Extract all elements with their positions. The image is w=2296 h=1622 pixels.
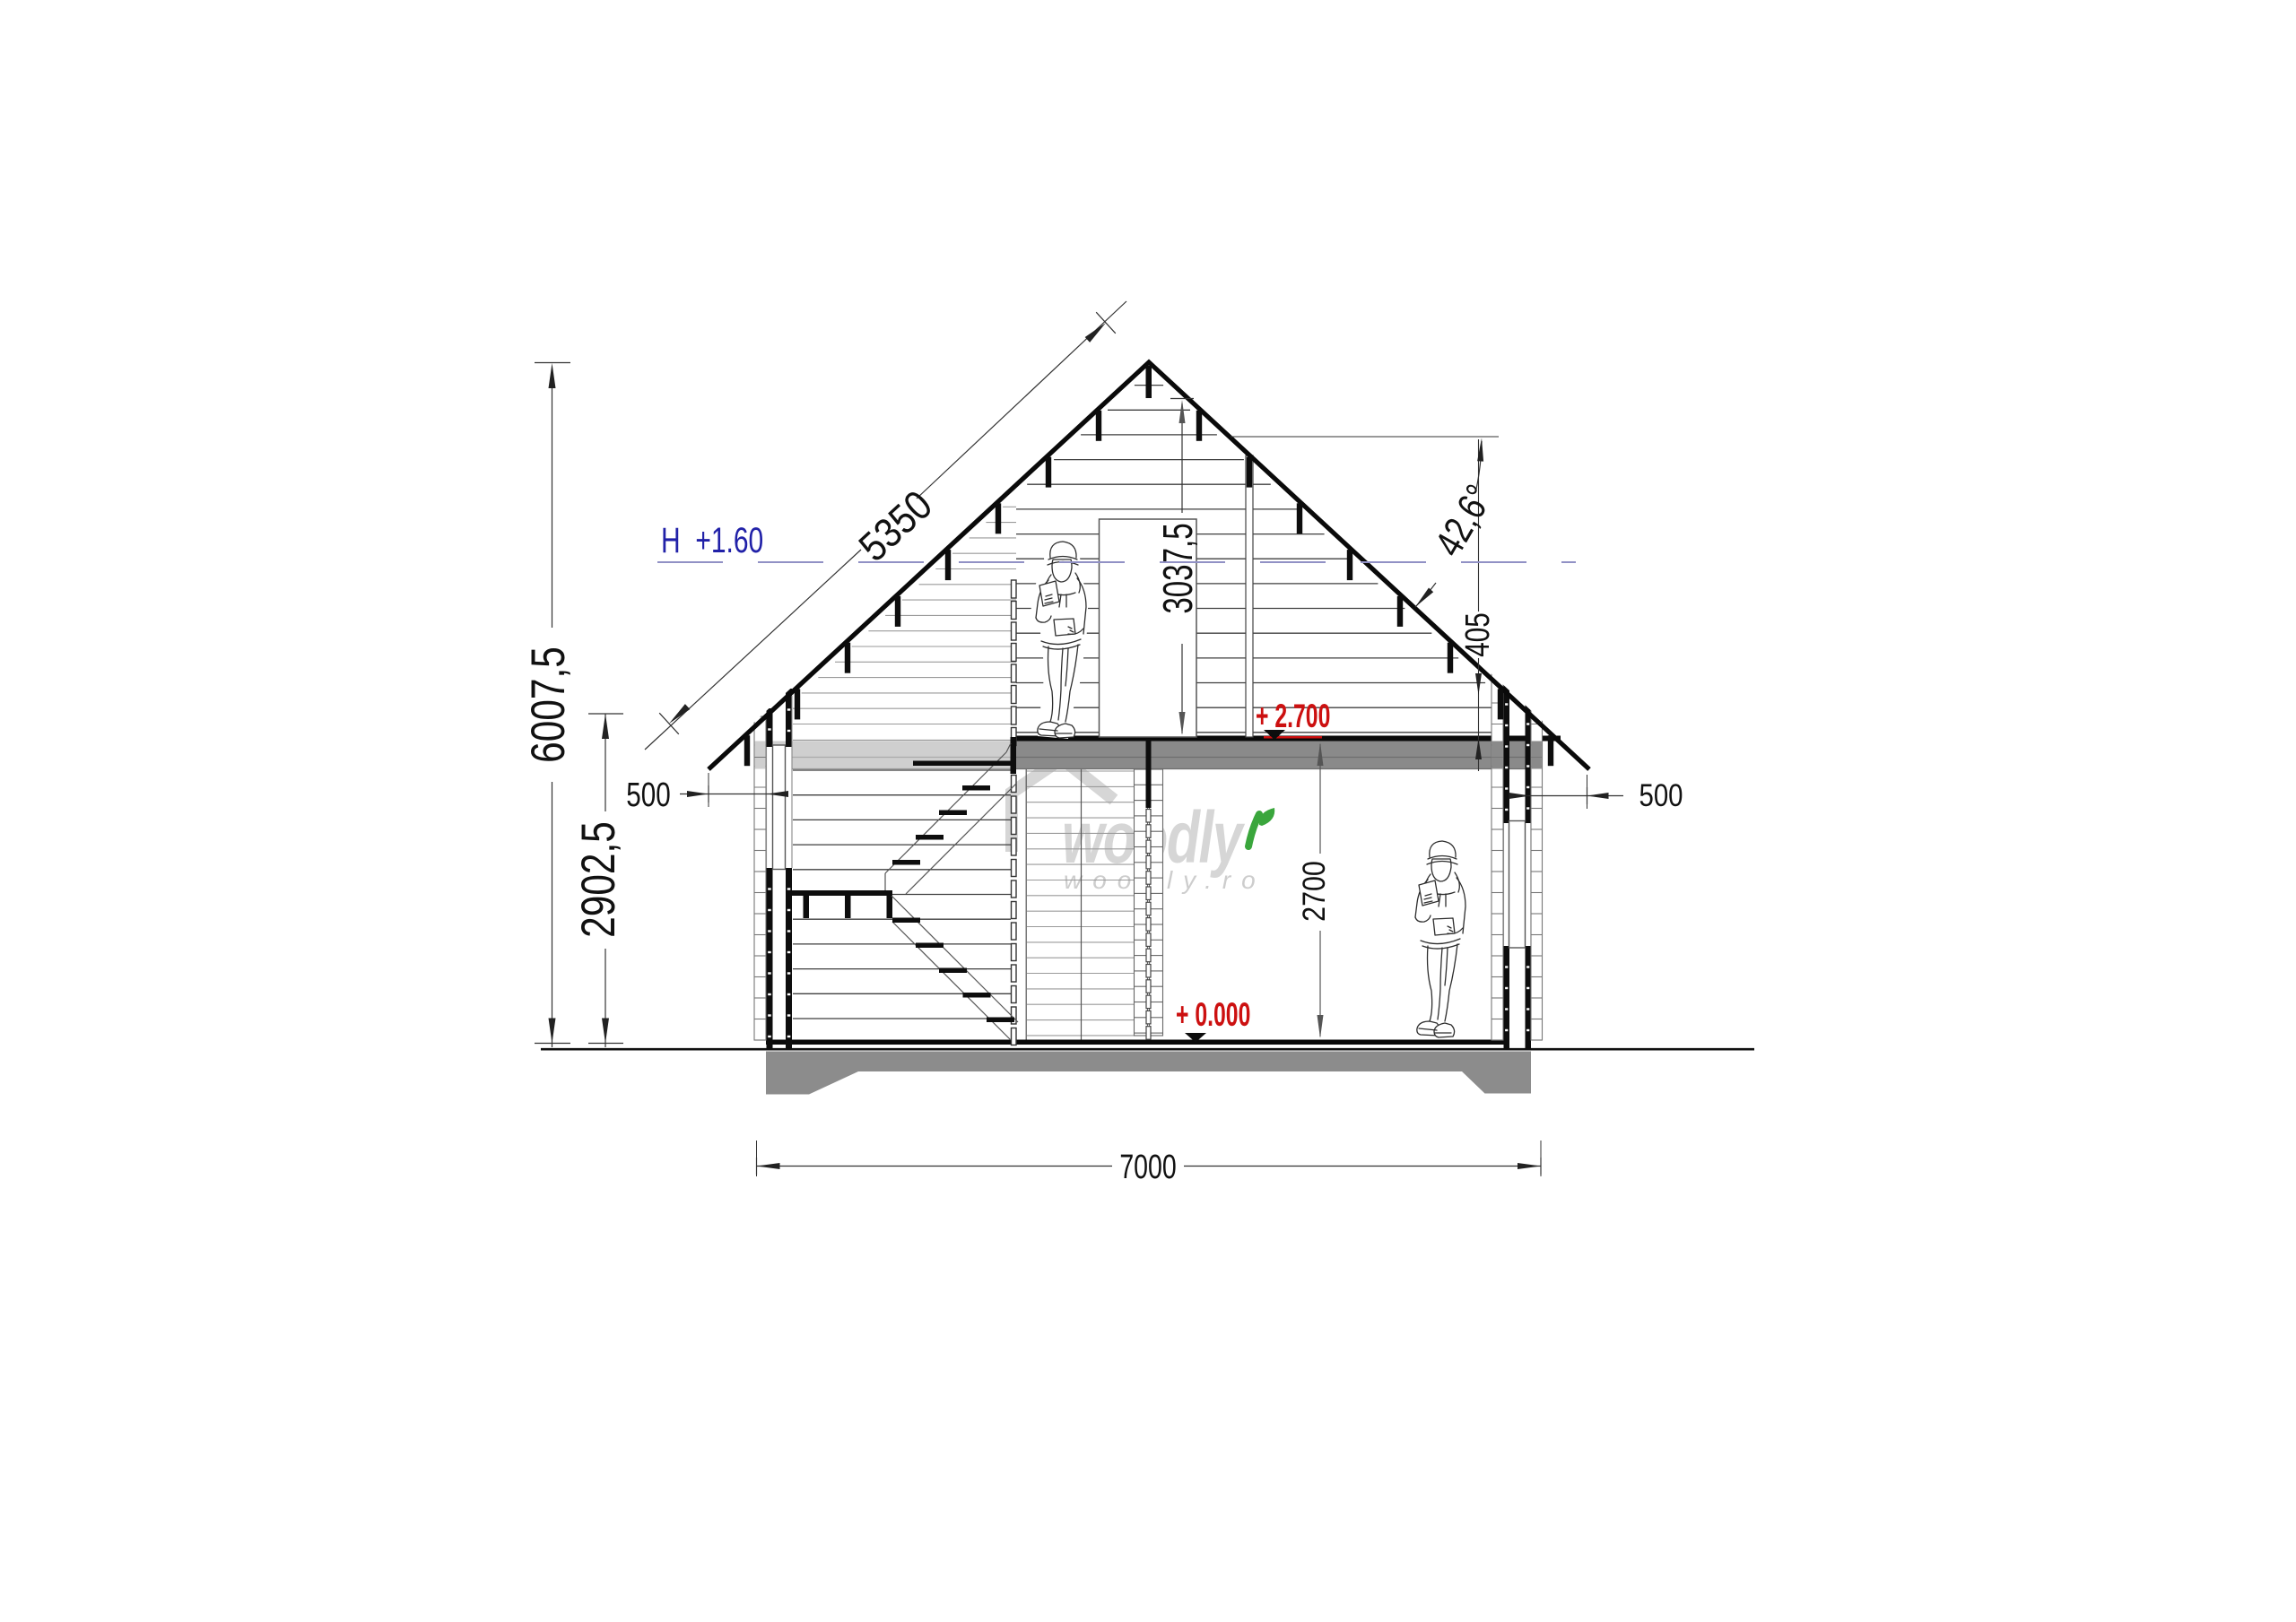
- svg-text:2700: 2700: [1296, 861, 1331, 922]
- svg-text:7000: 7000: [1119, 1149, 1176, 1186]
- svg-text:500: 500: [626, 776, 670, 814]
- svg-text:+ 0.000: + 0.000: [1176, 995, 1250, 1033]
- svg-text:2902,5: 2902,5: [573, 821, 626, 938]
- svg-text:3037,5: 3037,5: [1156, 523, 1201, 613]
- svg-text:+ 2.700: + 2.700: [1256, 697, 1330, 734]
- svg-text:H +1.60: H +1.60: [661, 521, 763, 560]
- svg-text:500: 500: [1639, 778, 1683, 813]
- svg-text:6007,5: 6007,5: [523, 646, 576, 763]
- svg-text:405: 405: [1459, 612, 1497, 656]
